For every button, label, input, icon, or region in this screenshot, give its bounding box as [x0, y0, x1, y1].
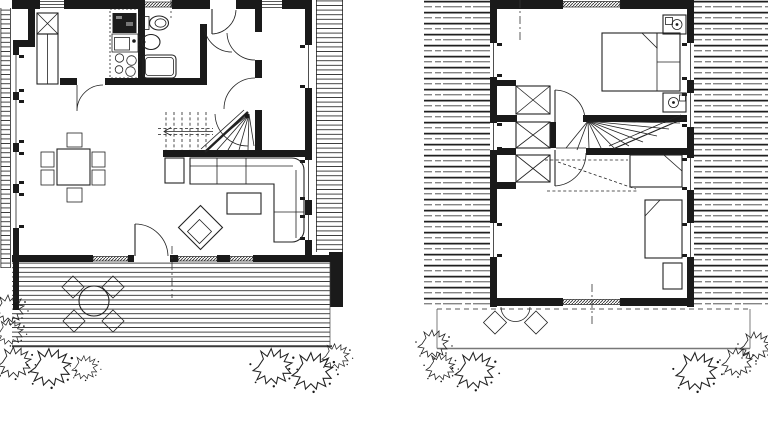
- roof-deck-right: [694, 0, 768, 307]
- window-right-1: [300, 45, 312, 88]
- balcony: [437, 307, 750, 349]
- single-bed-vertical: [645, 200, 682, 258]
- window-left-1: [13, 55, 24, 92]
- glass-door-bottom-3: [230, 257, 253, 262]
- entry-door: [212, 9, 236, 34]
- window-upright-4: [682, 223, 694, 257]
- ground-floor-plan: [0, 0, 353, 393]
- kitchen-counter: [110, 9, 139, 78]
- window-right-2: [300, 160, 312, 200]
- toilet-icon: [143, 16, 169, 30]
- left-walkway-deck: [1, 8, 11, 268]
- window-top-1: [40, 1, 64, 7]
- single-bed-horizontal: [630, 155, 682, 187]
- bathroom: [142, 16, 176, 78]
- wardrobe-x: [37, 13, 58, 34]
- window-left-2: [13, 100, 24, 143]
- double-bed: [602, 33, 680, 91]
- glass-door-bottom-upper: [563, 300, 620, 305]
- window-top-upper: [563, 2, 620, 8]
- living-room: [165, 158, 304, 250]
- window-upleft-2: [490, 123, 502, 150]
- hall-door-arcs: [77, 24, 255, 111]
- glass-door-bottom-2: [178, 257, 217, 262]
- interior-walls: [60, 0, 305, 157]
- side-table: [165, 158, 184, 183]
- corner-sofa: [190, 158, 304, 242]
- coffee-table: [227, 193, 261, 214]
- staircase-ground: [158, 110, 254, 152]
- small-cabinet: [663, 263, 682, 289]
- lounge-chair: [179, 206, 223, 250]
- interior-walls-upper: [497, 80, 687, 189]
- window-left-3: [13, 152, 24, 184]
- roof-deck-left: [424, 0, 490, 307]
- balcony-round-table: [501, 307, 530, 322]
- dining-set: [41, 133, 105, 202]
- window-upleft-3: [490, 223, 502, 257]
- upper-floor-plan: [415, 0, 768, 393]
- window-upright-3: [682, 158, 694, 190]
- window-upleft-1: [490, 43, 502, 77]
- window-left-4: [13, 193, 24, 228]
- window-upright-1: [682, 43, 694, 80]
- nightstand-top: [663, 15, 686, 34]
- cooktop-icon: [115, 54, 136, 76]
- glass-door-bottom-1: [93, 257, 128, 262]
- shrubs-right-plan: [415, 330, 768, 393]
- floor-plan-drawing: [0, 0, 768, 422]
- kitchen-sink: [112, 34, 138, 52]
- floor-plan-page: [0, 0, 768, 422]
- tall-cupboard: [37, 34, 58, 84]
- closets-x: [516, 86, 550, 182]
- washbasin-icon: [142, 35, 160, 50]
- terrace-door: [135, 224, 168, 256]
- shower-tray: [143, 55, 176, 78]
